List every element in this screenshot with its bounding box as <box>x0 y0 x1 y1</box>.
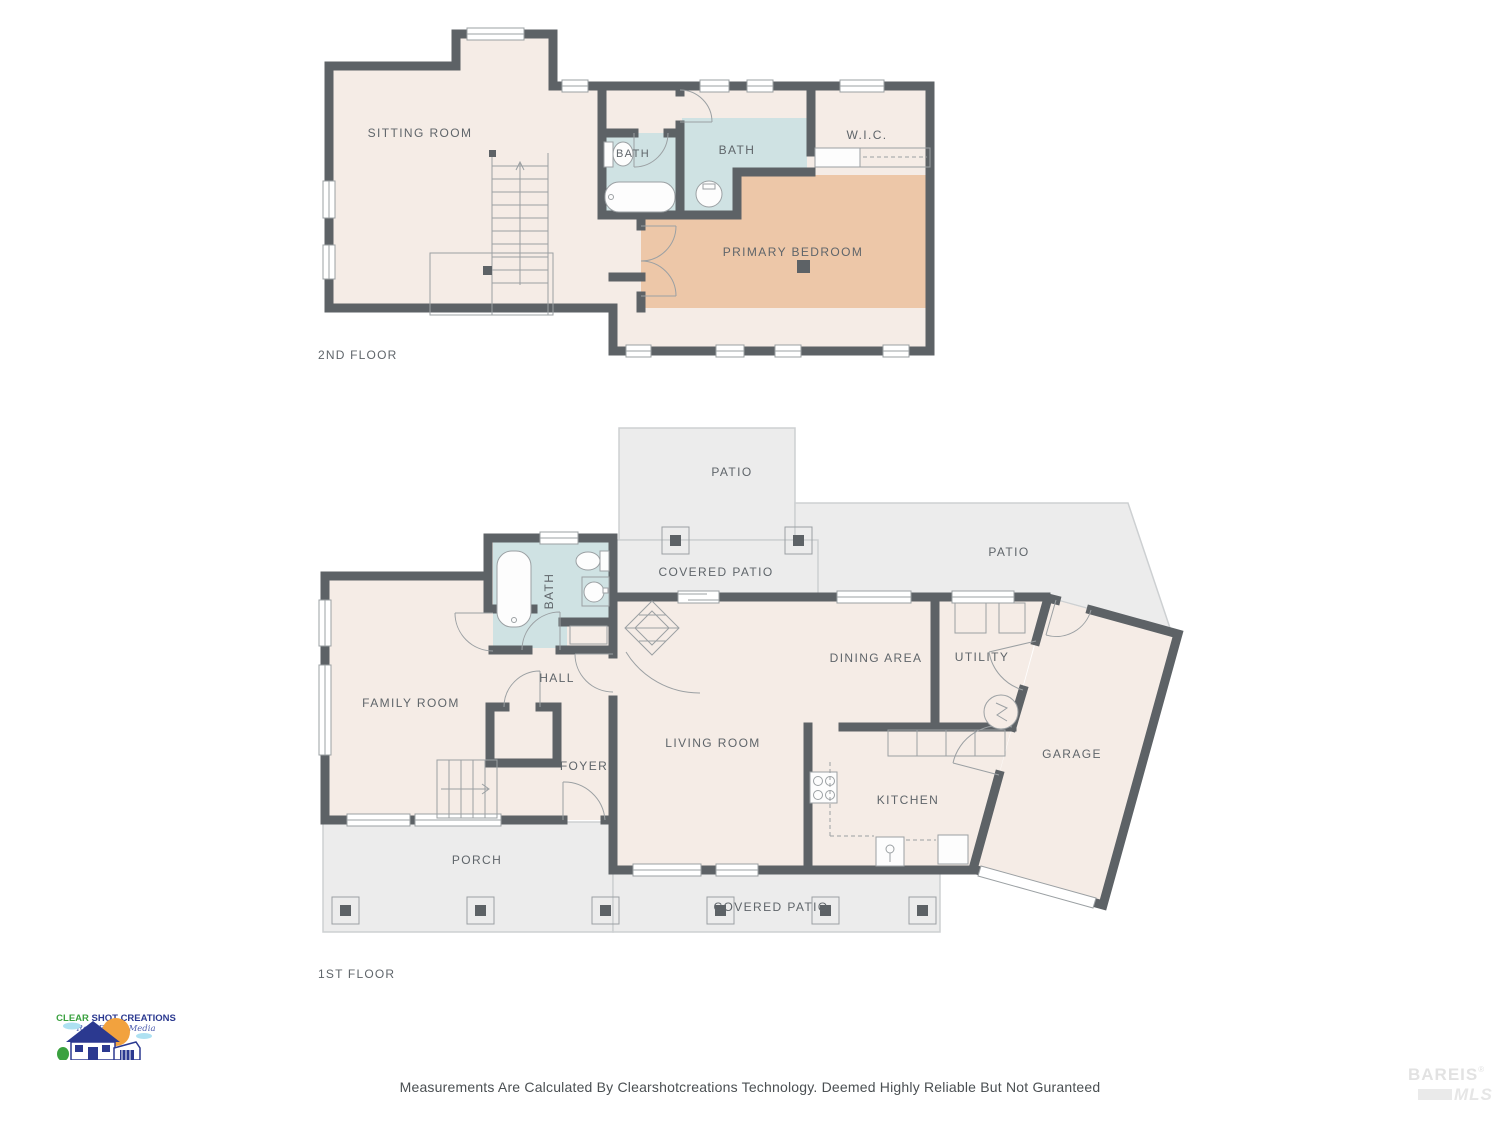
room-label-bath-main: BATH <box>719 143 756 157</box>
room-label-patio-right: PATIO <box>988 545 1029 559</box>
room-label-primary-bedroom: PRIMARY BEDROOM <box>723 245 864 259</box>
floor-plan-drawing <box>0 0 1500 1125</box>
room-label-patio-top: PATIO <box>711 465 752 479</box>
floor-plan-page: SITTING ROOM BATH BATH W.I.C. PRIMARY BE… <box>0 0 1500 1125</box>
room-label-bath: BATH <box>542 573 556 610</box>
room-label-sitting-room: SITTING ROOM <box>368 126 473 140</box>
room-label-living-room: LIVING ROOM <box>665 736 760 750</box>
room-label-porch: PORCH <box>452 853 502 867</box>
room-label-utility: UTILITY <box>955 650 1009 664</box>
watermark-bareis-mls: BAREIS® MLS <box>1408 1066 1500 1103</box>
second-floor-plan <box>323 28 930 357</box>
company-logo: CLEAR SHOT CREATIONS Real Estate Media <box>56 1014 176 1034</box>
room-label-garage: GARAGE <box>1042 747 1102 761</box>
room-label-dining-area: DINING AREA <box>830 651 923 665</box>
room-label-kitchen: KITCHEN <box>877 793 939 807</box>
room-label-family-room: FAMILY ROOM <box>362 696 460 710</box>
room-label-covered-patio-top: COVERED PATIO <box>658 565 773 579</box>
floor-title-second: 2ND FLOOR <box>318 348 397 362</box>
first-floor-plan <box>319 428 1178 932</box>
room-label-hall: HALL <box>539 671 575 685</box>
watermark-bar <box>1418 1089 1452 1100</box>
floor-title-first: 1ST FLOOR <box>318 967 395 981</box>
logo-house-icon <box>56 1014 160 1060</box>
room-label-wic: W.I.C. <box>846 128 887 142</box>
room-label-foyer: FOYER <box>560 759 608 773</box>
room-label-bath-small: BATH <box>616 148 650 160</box>
disclaimer-text: Measurements Are Calculated By Clearshot… <box>400 1079 1101 1095</box>
room-label-covered-patio-bottom: COVERED PATIO <box>713 900 828 914</box>
